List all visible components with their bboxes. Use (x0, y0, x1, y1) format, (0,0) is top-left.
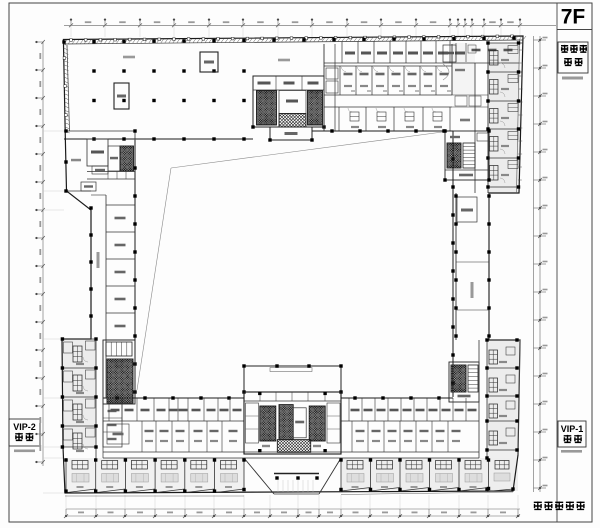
svg-text:VIP-1: VIP-1 (561, 424, 584, 434)
svg-text:VIP-2: VIP-2 (13, 422, 36, 432)
svg-text:7F: 7F (561, 6, 586, 29)
